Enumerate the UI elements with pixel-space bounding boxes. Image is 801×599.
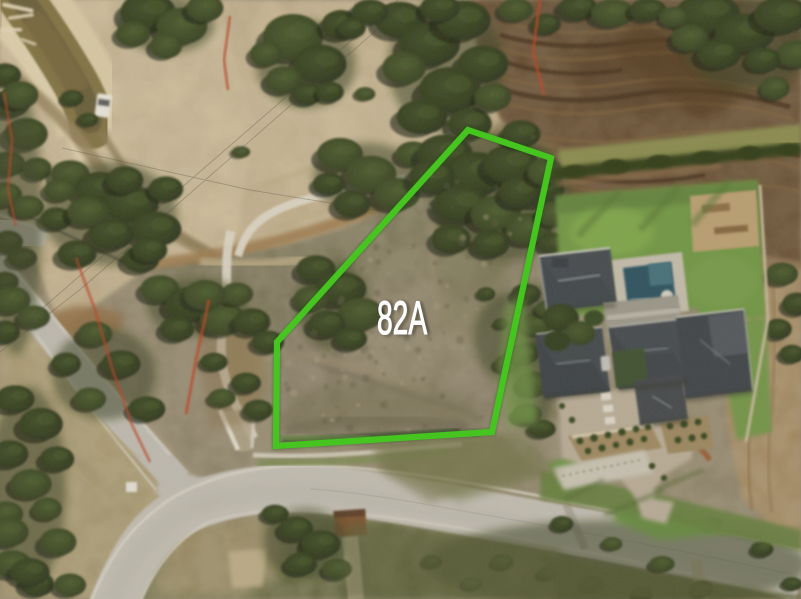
svg-text:82A: 82A	[377, 293, 427, 345]
